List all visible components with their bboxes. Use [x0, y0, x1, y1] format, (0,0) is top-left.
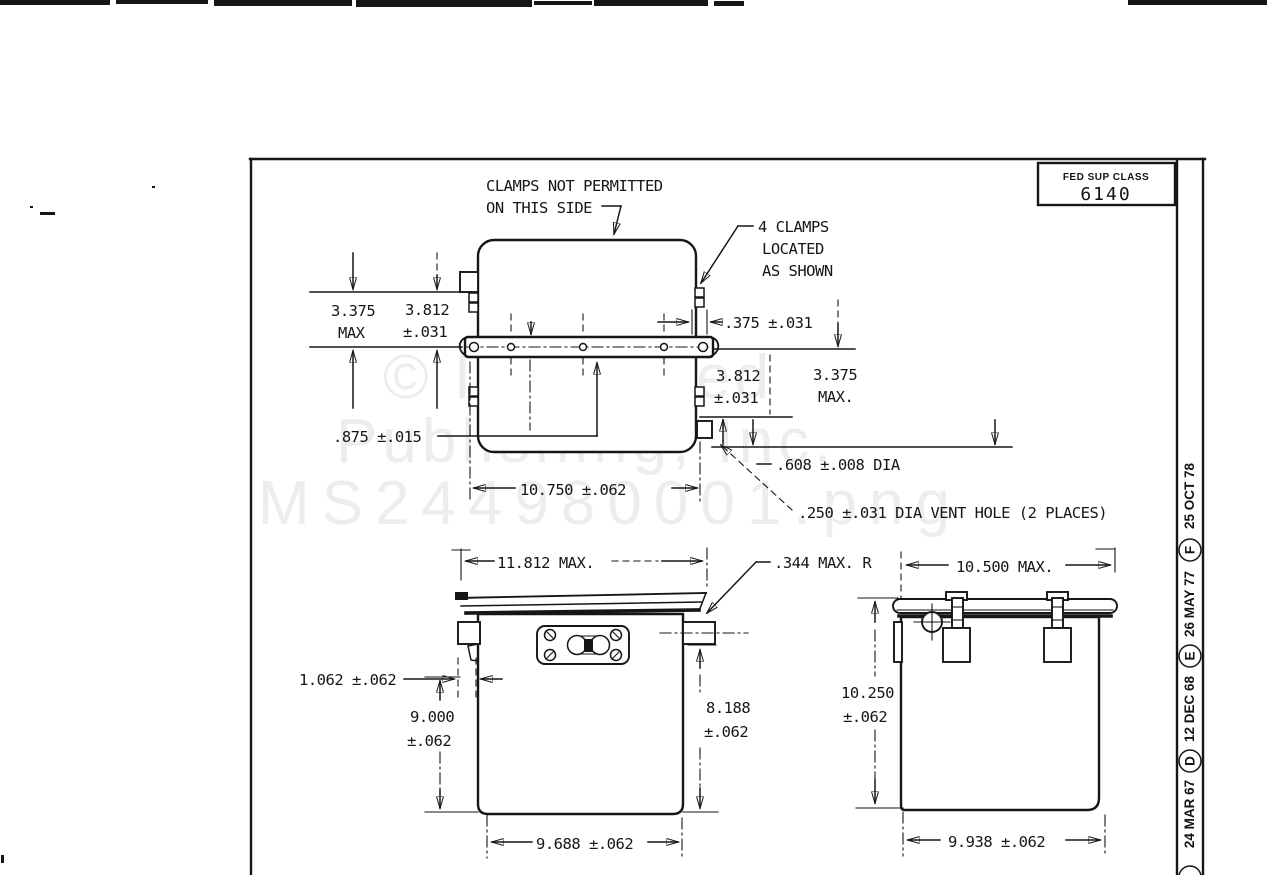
front-view: 11.812 MAX. .344 MAX. R 1.062 ±.062 9.00… [299, 548, 872, 858]
note-clamps-line2: LOCATED [762, 240, 824, 258]
revision-letter-circle-partial [1179, 866, 1201, 875]
drawing-canvas: © Integrated Publishing, Inc. MS24498000… [0, 0, 1267, 875]
revision-letter-d: D [1183, 756, 1198, 766]
revision-strip: 24 MAR 67 D 12 DEC 68 E 26 MAY 77 F 25 O… [1179, 462, 1201, 875]
side-view: 10.500 MAX. 10.250 ±.062 9.938 ±.062 [841, 548, 1117, 856]
front-base-dimension: 9.688 ±.062 [487, 815, 682, 858]
fed-sup-class-value: 6140 [1080, 184, 1131, 205]
revision-date-1: 24 MAR 67 [1182, 780, 1197, 848]
dim-9938: 9.938 ±.062 [948, 833, 1045, 851]
dim-10250-tol: ±.062 [843, 708, 887, 726]
dim-3375-left-value: 3.375 [331, 302, 375, 320]
dim-3375-right-suffix: MAX. [818, 388, 853, 406]
dim-608-boss: .608 ±.008 DIA [776, 456, 901, 474]
mounting-rail [460, 337, 719, 357]
note-clamps-line3: AS SHOWN [762, 262, 833, 280]
dim-3812-right-tol: ±.031 [714, 389, 758, 407]
front-width-dimension: 11.812 MAX. [452, 548, 707, 588]
dim-10750: 10.750 ±.062 [520, 481, 626, 499]
dim-3375-right-value: 3.375 [813, 366, 857, 384]
vent-boss [697, 421, 712, 438]
dim-9000-tol: ±.062 [407, 732, 451, 750]
dim-875: .875 ±.015 [333, 428, 421, 446]
dim-9688: 9.688 ±.062 [536, 835, 633, 853]
note-clamps-line1: 4 CLAMPS [758, 218, 829, 236]
scanned-drawing-page: © Integrated Publishing, Inc. MS24498000… [0, 0, 1267, 875]
revision-date-2: 12 DEC 68 [1182, 675, 1197, 742]
note-no-clamps-line1: CLAMPS NOT PERMITTED [486, 177, 663, 195]
dim-10500: 10.500 MAX. [956, 558, 1053, 576]
side-width-dimension: 10.500 MAX. [901, 548, 1115, 598]
dim-9000-value: 9.000 [410, 708, 454, 726]
front-body-height-dimension: 8.188 ±.062 [683, 645, 750, 812]
fed-sup-class-box: FED SUP CLASS 6140 [1038, 163, 1175, 205]
dim-250-vent: .250 ±.031 DIA VENT HOLE (2 PLACES) [798, 504, 1107, 522]
dim-8188-value: 8.188 [706, 699, 750, 717]
revision-date-4: 25 OCT 78 [1182, 462, 1197, 529]
left-tab [460, 272, 478, 292]
front-connector [537, 626, 629, 664]
dim-8188-tol: ±.062 [704, 723, 748, 741]
dim-3812-left-tol: ±.031 [403, 323, 447, 341]
dim-3812-left-value: 3.812 [405, 301, 449, 319]
revision-date-3: 26 MAY 77 [1182, 571, 1197, 637]
side-base-dimension: 9.938 ±.062 [903, 812, 1105, 856]
side-left-tab [894, 622, 902, 662]
dim-10250-value: 10.250 [841, 684, 894, 702]
dim-3812-right-value: 3.812 [716, 367, 760, 385]
front-lid [455, 592, 706, 613]
fed-sup-class-label: FED SUP CLASS [1063, 172, 1149, 183]
dim-3375-left-suffix: MAX [338, 324, 366, 342]
dim-1062: 1.062 ±.062 [299, 671, 396, 689]
dim-375-clamp: .375 ±.031 [724, 314, 812, 332]
front-left-tab [458, 622, 480, 644]
revision-letter-e: E [1183, 651, 1198, 660]
revision-letter-f: F [1183, 546, 1198, 554]
dim-344-radius: .344 MAX. R [774, 554, 872, 572]
note-no-clamps-line2: ON THIS SIDE [486, 199, 592, 217]
dim-11812: 11.812 MAX. [497, 554, 594, 572]
front-radius-callout: .344 MAX. R [707, 554, 872, 613]
front-lip-dimension: 1.062 ±.062 [299, 658, 502, 700]
front-height-dimension: 9.000 ±.062 [407, 677, 478, 812]
